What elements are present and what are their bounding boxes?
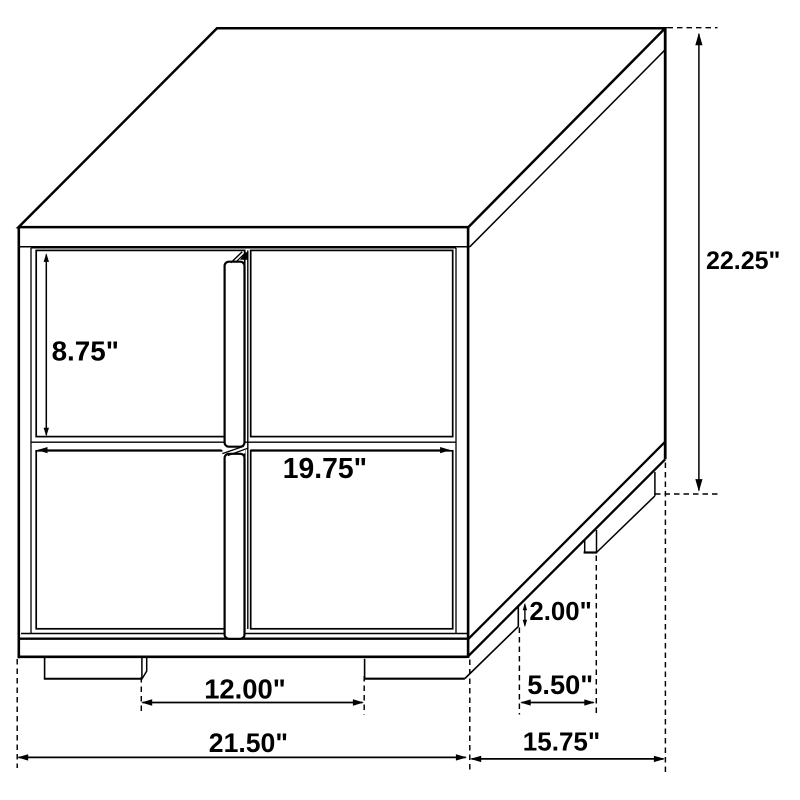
svg-text:15.75": 15.75"	[523, 727, 600, 757]
svg-text:21.50": 21.50"	[209, 728, 288, 758]
svg-text:19.75": 19.75"	[283, 452, 367, 484]
svg-text:12.00": 12.00"	[204, 674, 286, 705]
svg-text:8.75": 8.75"	[52, 336, 119, 367]
svg-text:22.25": 22.25"	[706, 247, 780, 275]
svg-text:5.50": 5.50"	[527, 669, 593, 700]
svg-text:2.00": 2.00"	[529, 598, 591, 626]
